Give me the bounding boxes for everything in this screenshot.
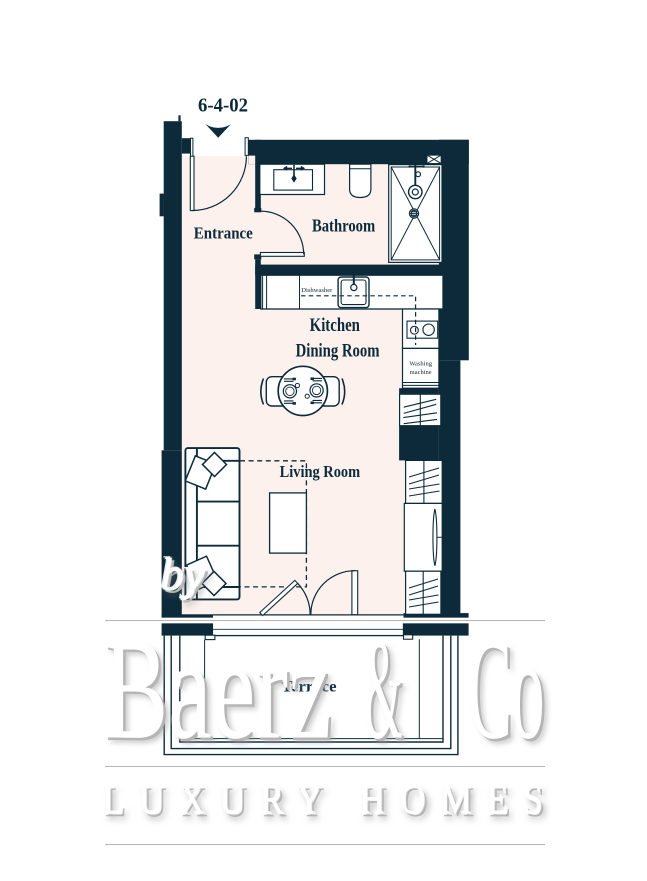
svg-text:Bathroom: Bathroom <box>312 215 375 235</box>
svg-text:Washing: Washing <box>409 361 432 368</box>
svg-text:machine: machine <box>410 369 432 376</box>
svg-text:Dishwasher: Dishwasher <box>301 287 333 294</box>
svg-text:6-4-02: 6-4-02 <box>198 94 248 116</box>
svg-text:Dining Room: Dining Room <box>296 341 380 362</box>
svg-text:Entrance: Entrance <box>194 224 253 243</box>
svg-text:Kitchen: Kitchen <box>310 315 361 336</box>
svg-text:Terrace: Terrace <box>282 679 337 696</box>
svg-text:Living Room: Living Room <box>280 462 361 481</box>
